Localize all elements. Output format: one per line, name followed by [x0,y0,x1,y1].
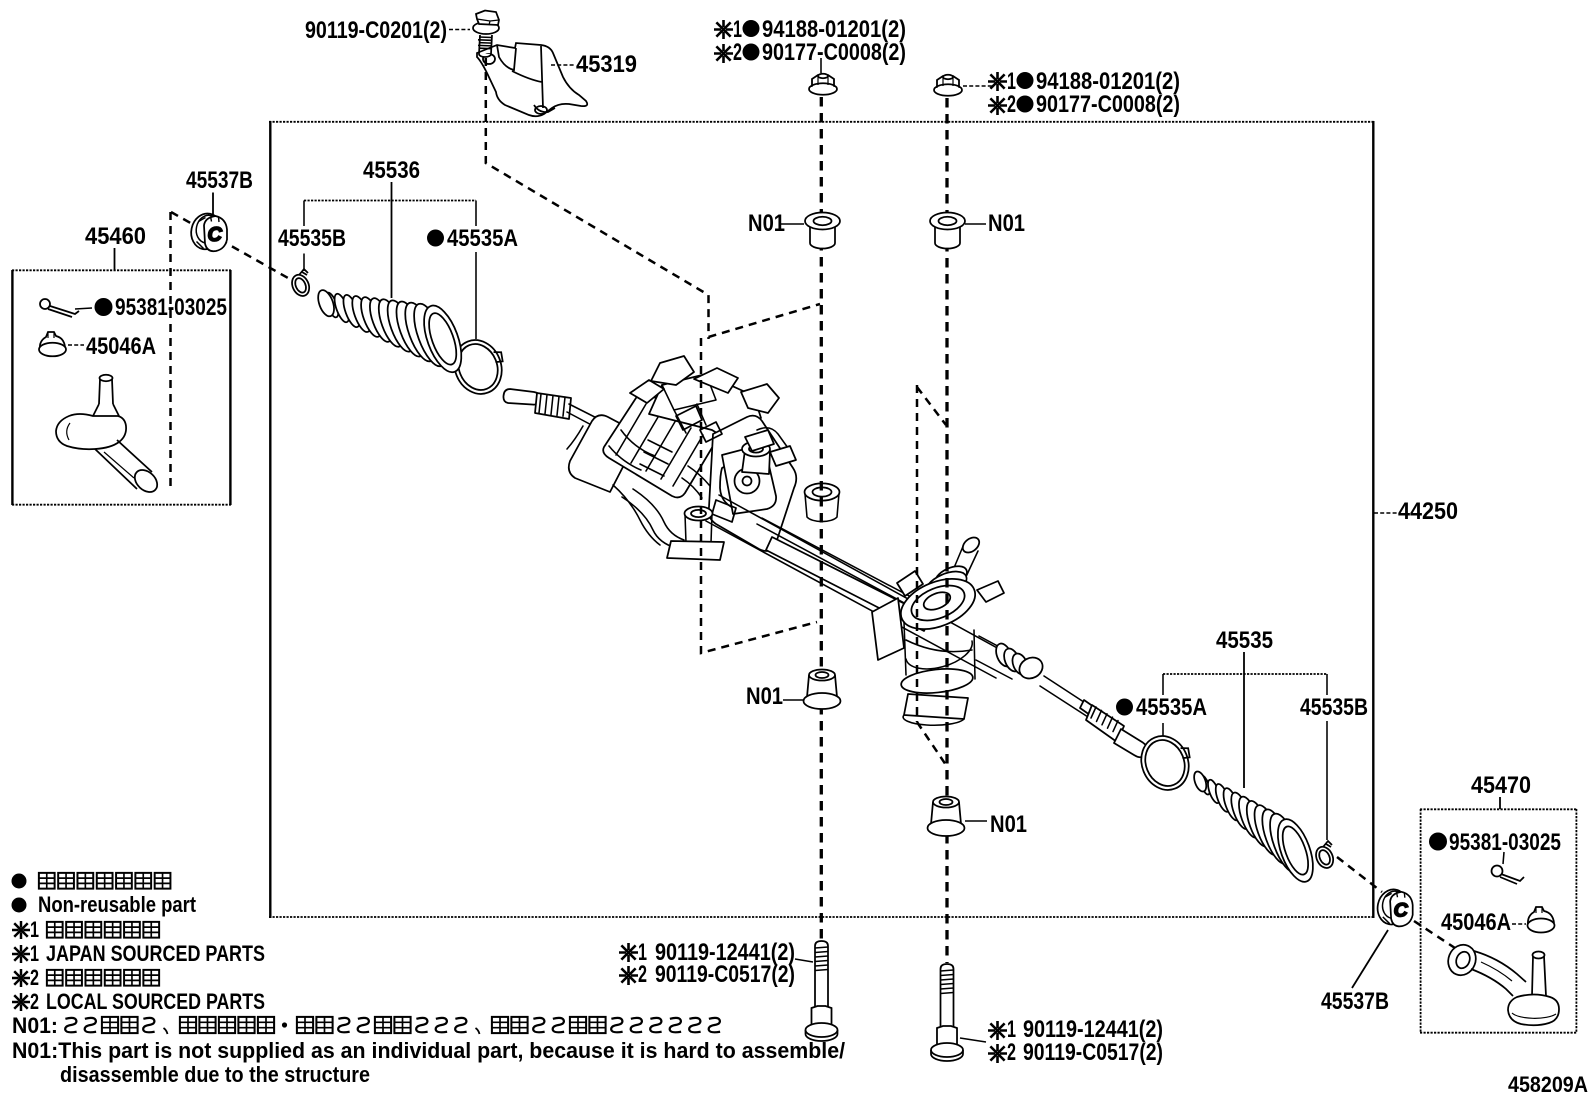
svg-text:N01: N01 [746,683,783,710]
svg-text:45537B: 45537B [186,167,253,194]
svg-text:458209A: 458209A [1508,1072,1588,1097]
svg-text:disassemble due to the structu: disassemble due to the structure [60,1062,370,1087]
svg-text:2: 2 [30,989,39,1014]
svg-text:90119-C0517(2): 90119-C0517(2) [1023,1039,1163,1066]
svg-text:C: C [208,224,223,246]
svg-text:LOCAL SOURCED PARTS: LOCAL SOURCED PARTS [46,989,265,1014]
svg-text:N01: N01 [748,210,785,237]
svg-text:N01:This part is not supplied: N01:This part is not supplied as an indi… [12,1038,845,1063]
svg-text:45535B: 45535B [1300,694,1368,721]
svg-text:2: 2 [1007,91,1016,118]
svg-text:1: 1 [30,917,39,942]
svg-text:2: 2 [30,965,39,990]
svg-text:C: C [1394,899,1409,921]
svg-text:45470: 45470 [1471,772,1531,799]
svg-text:Non-reusable part: Non-reusable part [38,892,197,917]
svg-text:45460: 45460 [85,223,146,250]
svg-text:45535A: 45535A [1136,694,1207,721]
svg-text:90119-C0201(2): 90119-C0201(2) [305,17,447,44]
svg-text:45537B: 45537B [1321,988,1389,1015]
svg-text:N01: N01 [990,811,1027,838]
svg-text:45535B: 45535B [278,225,346,252]
svg-text:2: 2 [638,961,647,988]
svg-text:45046A: 45046A [86,333,156,360]
svg-text:45536: 45536 [363,157,420,184]
svg-text:2: 2 [1007,1039,1016,1066]
svg-text:JAPAN SOURCED PARTS: JAPAN SOURCED PARTS [46,941,265,966]
svg-text:N01:: N01: [12,1013,58,1038]
svg-text:N01: N01 [988,210,1025,237]
svg-text:44250: 44250 [1398,498,1458,525]
svg-text:2: 2 [733,39,742,66]
svg-text:90177-C0008(2): 90177-C0008(2) [1036,91,1180,118]
svg-text:45535: 45535 [1216,627,1273,654]
svg-text:90177-C0008(2): 90177-C0008(2) [762,39,906,66]
svg-text:45319: 45319 [576,51,637,78]
svg-text:90119-C0517(2): 90119-C0517(2) [655,961,795,988]
svg-text:1: 1 [30,941,39,966]
svg-text:45535A: 45535A [447,225,518,252]
svg-text:95381-03025: 95381-03025 [1449,829,1561,856]
svg-text:95381-03025: 95381-03025 [115,294,227,321]
svg-text:45046A: 45046A [1441,909,1511,936]
